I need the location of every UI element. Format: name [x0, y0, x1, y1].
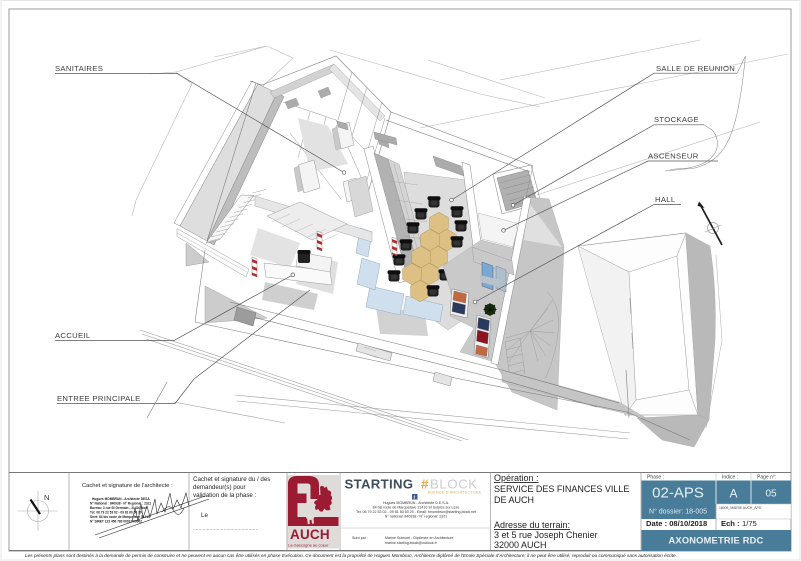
svg-text:02-APS: 02-APS	[652, 485, 704, 502]
svg-text:La Gascogne au coeur: La Gascogne au coeur	[288, 543, 329, 548]
svg-text:Ech :: Ech :	[721, 519, 740, 528]
svg-text:STOCKAGE: STOCKAGE	[654, 115, 699, 124]
svg-text:N° national: 840938 / N° regio: N° national: 840938 / N° regional: 2321	[385, 515, 447, 519]
svg-text:ENTREE PRINCIPALE: ENTREE PRINCIPALE	[57, 394, 141, 403]
svg-text:SERVICE DES FINANCES VILLE: SERVICE DES FINANCES VILLE	[494, 484, 629, 494]
svg-text:Page n°:: Page n°:	[757, 475, 776, 481]
svg-text:marine.starting-block@outlook.: marine.starting-block@outlook.fr	[385, 541, 438, 545]
svg-text:ACCUEIL: ACCUEIL	[55, 331, 91, 340]
svg-text:Cachet et signature de l'archi: Cachet et signature de l'architecte :	[82, 483, 173, 489]
svg-text:BLOCK: BLOCK	[430, 477, 478, 492]
svg-text:05: 05	[765, 489, 777, 500]
svg-text:Hugues MOMBRUN - Architecte DE: Hugues MOMBRUN - Architecte DESA	[92, 497, 150, 501]
svg-text:ASCENSEUR: ASCENSEUR	[648, 152, 699, 161]
svg-text:Marine Sulmont - Diplômée en A: Marine Sulmont - Diplômée en Architectur…	[385, 536, 454, 540]
svg-text:#: #	[421, 477, 429, 492]
svg-text:3 et 5 rue Joseph Chenier: 3 et 5 rue Joseph Chenier	[494, 530, 598, 540]
svg-text:AGENCE D'ARCHITECTURE: AGENCE D'ARCHITECTURE	[428, 491, 482, 495]
svg-text:Date : 08/10/2018: Date : 08/10/2018	[646, 519, 707, 528]
svg-text:Phase :: Phase :	[647, 475, 664, 481]
svg-text:SALLE DE REUNION: SALLE DE REUNION	[656, 64, 735, 73]
svg-text:Adresse du terrain:: Adresse du terrain:	[494, 520, 570, 530]
svg-text:32000 AUCH: 32000 AUCH	[494, 540, 547, 550]
svg-text:N° SIRET 123 456 789 00012 000: N° SIRET 123 456 789 00012 00062	[90, 520, 142, 524]
svg-text:Tel: 06 79 22 53 02 - 09 81 60: Tel: 06 79 22 53 02 - 09 81 60 50 29 - E…	[356, 510, 476, 514]
svg-text:Hugues MOMBRUN - Architecte D.: Hugues MOMBRUN - Architecte D.E.S.A.	[383, 501, 449, 505]
svg-text:DE AUCH: DE AUCH	[494, 495, 534, 505]
svg-text:demandeur(s) pour: demandeur(s) pour	[193, 484, 246, 491]
svg-text:N° National : 840938 - N° Regi: N° National : 840938 - N° Regional : 232…	[90, 502, 151, 506]
svg-text:Bureau: 3 rue St Germain - 314: Bureau: 3 rue St Germain - 31410 Noe	[90, 506, 147, 510]
svg-text:Cachet et signature du / des: Cachet et signature du / des	[193, 476, 270, 483]
svg-text:SANITAIRES: SANITAIRES	[55, 64, 103, 73]
svg-text:1/75: 1/75	[742, 519, 757, 528]
svg-text:N: N	[44, 493, 49, 502]
svg-text:Opération :: Opération :	[494, 473, 539, 483]
svg-text:Suivi par :: Suivi par :	[352, 536, 368, 540]
svg-text:N° dossier: 18-005: N° dossier: 18-005	[649, 508, 707, 516]
svg-text:AXONOMETRIE RDC: AXONOMETRIE RDC	[669, 536, 764, 546]
svg-text:Indice :: Indice :	[722, 475, 738, 481]
svg-text:A: A	[729, 487, 737, 501]
svg-text:AUCH: AUCH	[290, 527, 330, 542]
svg-text:18005_MAIRIE AUCH_APS: 18005_MAIRIE AUCH_APS	[719, 506, 762, 510]
svg-text:validation de la phase :: validation de la phase :	[193, 492, 257, 499]
svg-text:HALL: HALL	[655, 195, 676, 204]
svg-text:STARTING: STARTING	[345, 477, 414, 492]
svg-text:84 bis route de Marquefave 314: 84 bis route de Marquefave 31410 St Sulp…	[373, 506, 460, 510]
svg-text:Les présents plans sont destin: Les présents plans sont destinés à la de…	[25, 553, 677, 559]
svg-text:..............................: ........................................…	[193, 526, 258, 532]
svg-text:Le: Le	[201, 512, 208, 519]
